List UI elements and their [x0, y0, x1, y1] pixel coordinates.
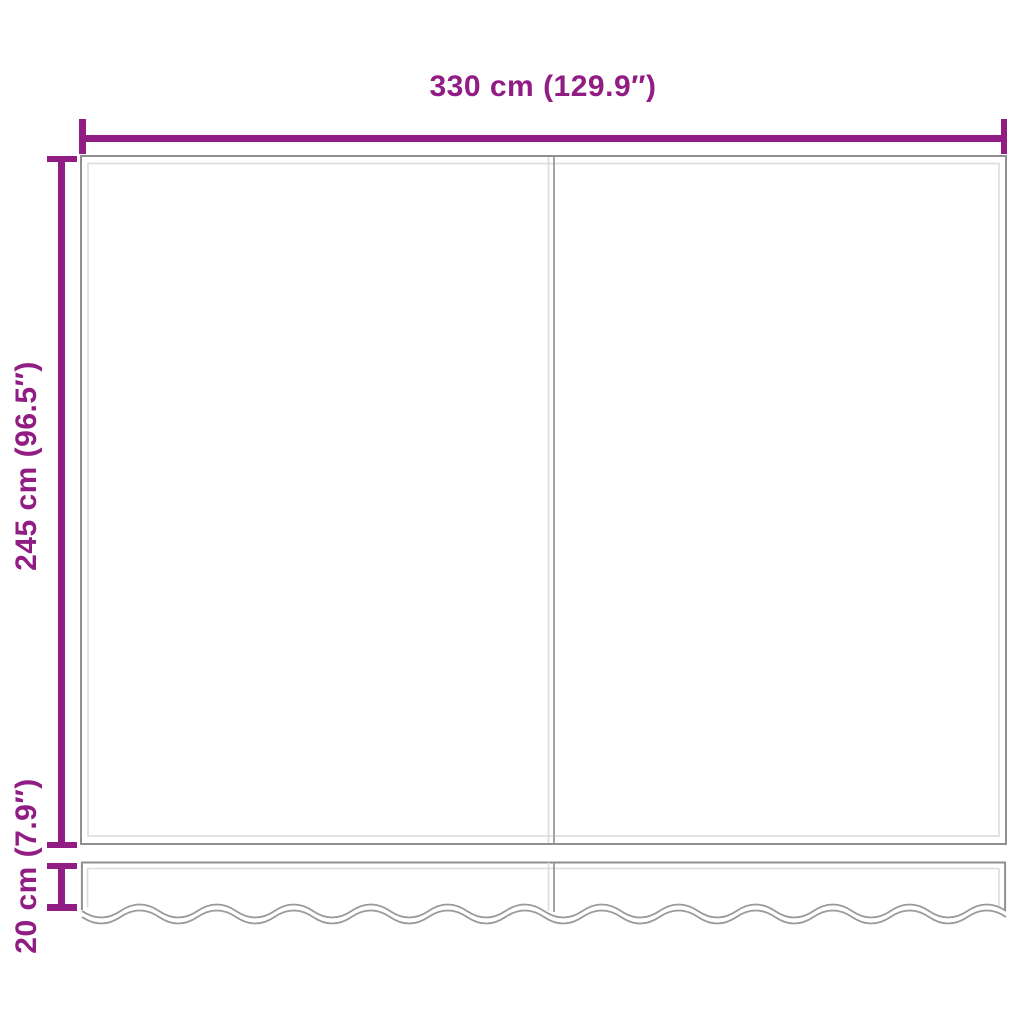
valance-height-dimension-line [58, 863, 65, 909]
width-dimension-label: 330 cm (129.9″) [82, 70, 1004, 104]
valance-height-dimension-tick-bottom [47, 904, 77, 911]
fabric-inner-hem-line [88, 164, 999, 837]
height-dimension-tick-bottom [47, 842, 77, 849]
valance-height-dimension-label: 20 cm (7.9″) [10, 778, 44, 953]
awning-fabric-drawing [0, 0, 1024, 1024]
width-dimension-tick-left [79, 119, 86, 154]
product-dimension-diagram: 330 cm (129.9″) 245 cm (96.5″) 20 cm (7.… [0, 0, 1024, 1024]
height-dimension-line [58, 156, 65, 844]
width-dimension-line [82, 135, 1004, 142]
height-dimension-label: 245 cm (96.5″) [10, 361, 44, 571]
height-dimension-tick-top [47, 156, 77, 163]
fabric-outer-rect [81, 156, 1006, 844]
width-dimension-tick-right [1001, 119, 1008, 154]
valance-height-dimension-tick-top [47, 863, 77, 870]
